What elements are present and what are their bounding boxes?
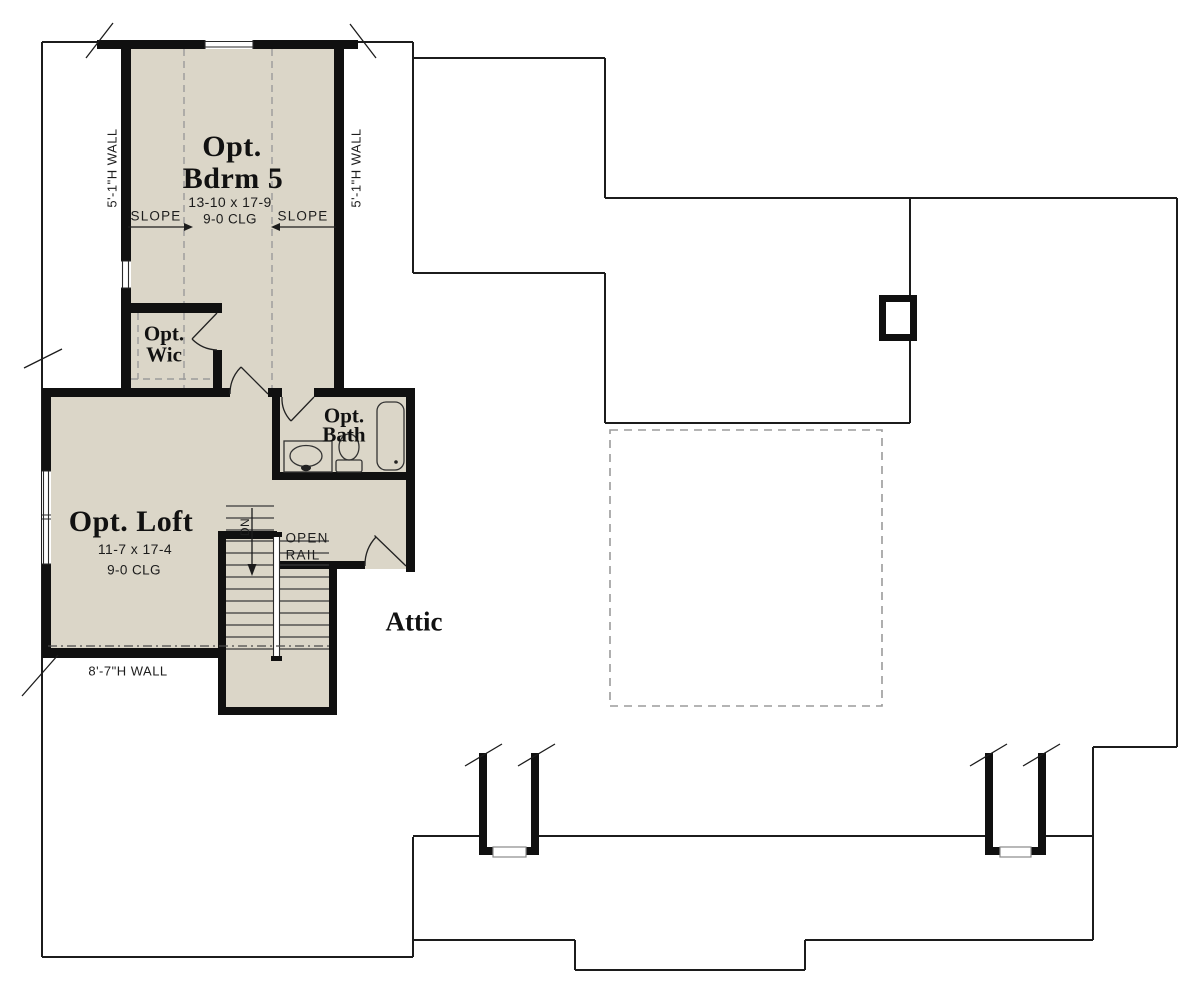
slope-label-right: SLOPE (277, 209, 328, 224)
open-rail-label-line1: OPEN (285, 531, 328, 546)
dormer-left-window-sill (493, 847, 526, 857)
bath-label-name: Bath (322, 423, 365, 448)
loft-label: Opt. Loft (69, 505, 194, 539)
bedroom-dimensions: 13-10 x 17-9 (188, 194, 271, 210)
bedroom-ceiling: 9-0 CLG (203, 212, 257, 227)
chimney (879, 295, 917, 341)
bedroom-side-window (121, 261, 131, 288)
slope-label-left: SLOPE (130, 209, 181, 224)
loft-ceiling: 9-0 CLG (107, 563, 161, 578)
loft-window (42, 471, 51, 564)
floor-plan: Opt. Bdrm 5 13-10 x 17-9 9-0 CLG SLOPE S… (0, 0, 1200, 997)
floor-plan-drawing (0, 0, 1200, 997)
dormer-right-window-sill (1000, 847, 1031, 857)
bedroom-label-name: Bdrm 5 (183, 162, 284, 196)
attic-dashed-outline (610, 430, 882, 706)
wic-label-name: Wic (146, 343, 182, 368)
dormer-left (479, 753, 539, 857)
bedroom-window (205, 40, 253, 49)
attic-label: Attic (386, 607, 443, 638)
bedroom-label-opt: Opt. (202, 130, 262, 164)
dormer-right (985, 753, 1046, 857)
open-rail-label-line2: RAIL (286, 548, 321, 563)
wall-height-label-right: 5'-1"H WALL (349, 128, 364, 207)
wall-height-label-left: 5'-1"H WALL (105, 128, 120, 207)
wall-height-label-bottom: 8'-7"H WALL (88, 664, 167, 679)
loft-dimensions: 11-7 x 17-4 (98, 541, 172, 557)
stairs-down-label: DN (238, 518, 252, 536)
